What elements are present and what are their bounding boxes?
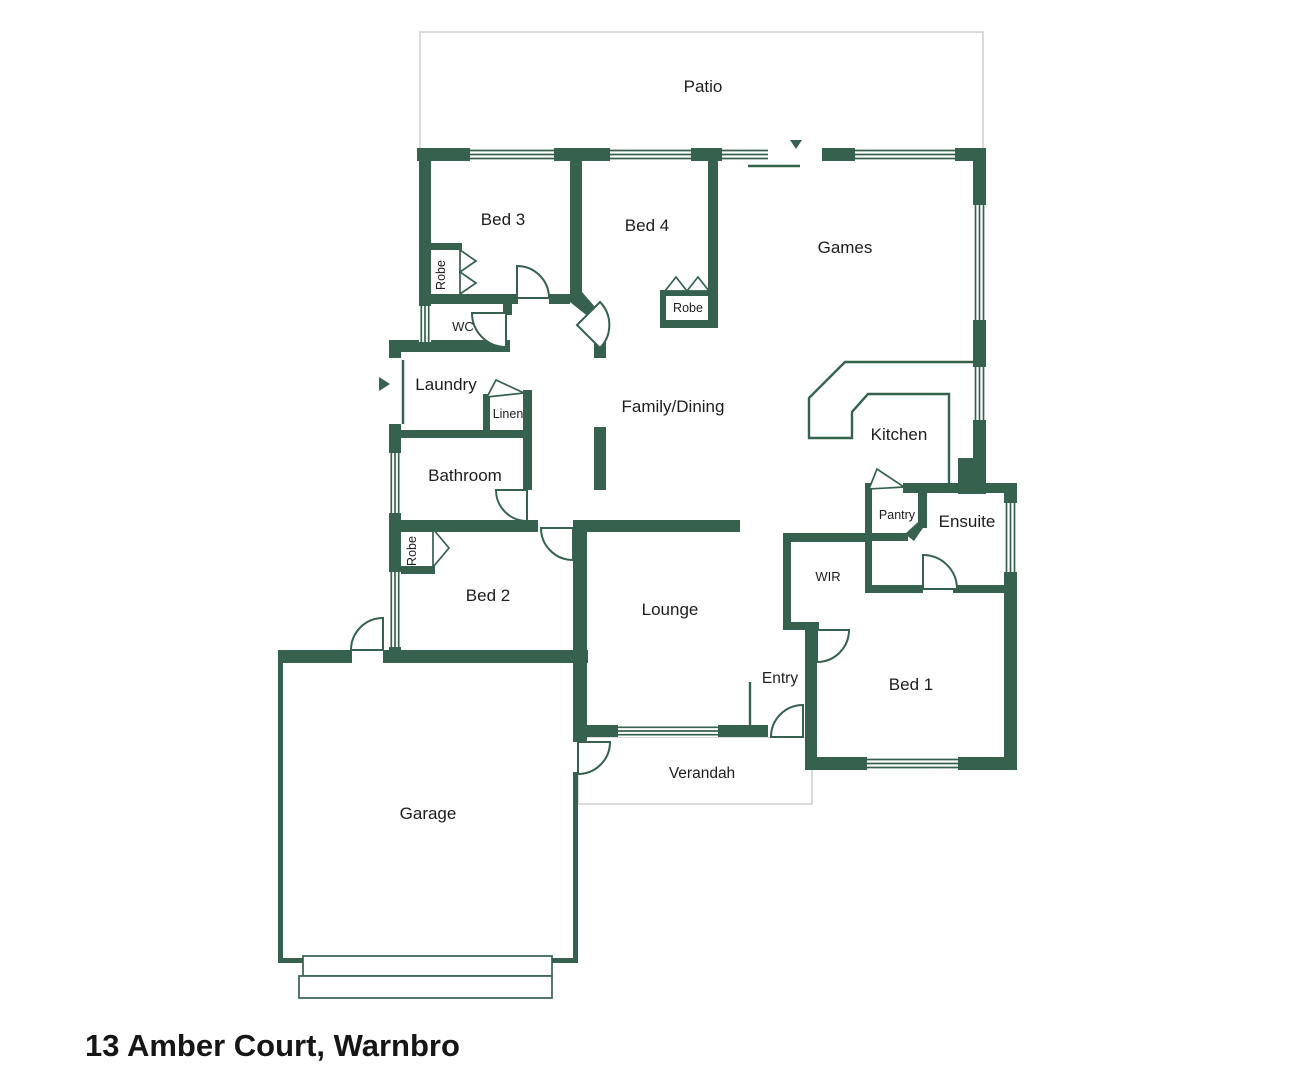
wall-segment — [868, 533, 908, 541]
window — [973, 205, 986, 320]
wall-segment — [865, 585, 923, 593]
floor-plan-drawing: Patio Bed 3 Bed 4 Games Robe WC Laundry … — [0, 0, 1299, 1080]
wall-segment — [398, 524, 435, 532]
room-label-linen: Linen — [493, 407, 524, 421]
room-label-family: Family/Dining — [622, 397, 725, 416]
page-title: 13 Amber Court, Warnbro — [85, 1028, 460, 1063]
wall-segment — [573, 520, 740, 532]
wall-segment — [958, 458, 986, 494]
room-label-laundry: Laundry — [415, 375, 477, 394]
window — [389, 453, 401, 513]
room-label-robe-bed3: Robe — [434, 260, 448, 290]
window — [389, 572, 401, 647]
side-entry-arrow-icon — [379, 377, 390, 391]
wall-segment — [570, 161, 582, 294]
robe-bed3-doors-icon — [460, 272, 476, 294]
linen-door-leaf — [487, 380, 524, 397]
room-label-bed2: Bed 2 — [466, 586, 510, 605]
room-labels: Patio Bed 3 Bed 4 Games Robe WC Laundry … — [400, 77, 996, 823]
room-label-kitchen: Kitchen — [871, 425, 928, 444]
room-label-bed3: Bed 3 — [481, 210, 525, 229]
window — [722, 148, 768, 161]
ensuite-door-arc — [923, 555, 957, 589]
room-label-patio: Patio — [684, 77, 723, 96]
robe-bed3-doors-icon — [460, 250, 476, 272]
garage-side-door-arc — [351, 618, 383, 650]
window — [973, 367, 986, 420]
wall-segment — [953, 585, 1008, 593]
bed2-door-arc — [541, 528, 573, 560]
room-label-robe-bed2: Robe — [405, 536, 419, 566]
room-label-wc: WC — [452, 319, 474, 334]
wall-segment — [805, 622, 817, 770]
wall-segment — [573, 772, 578, 963]
room-label-pantry: Pantry — [879, 508, 916, 522]
wall-segment — [594, 427, 606, 490]
wall-segment — [483, 430, 532, 438]
wall-segment — [783, 533, 791, 630]
bed3-door-arc — [517, 266, 549, 298]
room-label-bed1: Bed 1 — [889, 675, 933, 694]
wall-segment — [398, 430, 483, 438]
wall-segment — [549, 294, 570, 304]
wall-segment — [708, 148, 718, 328]
robe-bed4-doors-icon — [687, 277, 709, 291]
wall-segment — [783, 533, 865, 542]
window — [470, 148, 554, 161]
sliding-door-opening — [768, 148, 822, 161]
pantry-door-leaf — [869, 469, 904, 489]
wall-segment — [398, 566, 435, 574]
entry-door-arc — [771, 705, 803, 737]
room-label-bed4: Bed 4 — [625, 216, 669, 235]
room-label-games: Games — [818, 238, 873, 257]
wall-segment — [523, 438, 532, 490]
room-label-bathroom: Bathroom — [428, 466, 502, 485]
wall-segment — [905, 522, 927, 541]
wall-segment — [278, 652, 283, 963]
window — [1004, 503, 1017, 572]
garage-door — [299, 956, 552, 998]
wall-segment — [278, 650, 352, 663]
verandah-door-arc — [578, 742, 610, 774]
door-direction-marker-icon — [790, 140, 802, 149]
wall-segment — [573, 520, 587, 742]
bathroom-door-arc — [496, 490, 527, 521]
bed1-door-arc — [817, 630, 849, 662]
room-label-robe-bed4: Robe — [673, 301, 703, 315]
room-label-lounge: Lounge — [642, 600, 699, 619]
room-label-verandah: Verandah — [669, 765, 735, 782]
room-label-garage: Garage — [400, 804, 457, 823]
wall-segment — [383, 650, 588, 663]
window — [867, 757, 958, 770]
wall-segment — [660, 320, 718, 328]
kitchen-bench — [809, 362, 973, 483]
window — [618, 725, 718, 737]
laundry-door-opening — [389, 358, 401, 424]
wall-segment — [428, 243, 462, 250]
window — [419, 306, 431, 342]
floor-plan-page: Patio Bed 3 Bed 4 Games Robe WC Laundry … — [0, 0, 1299, 1080]
room-label-entry: Entry — [762, 670, 798, 687]
walls — [278, 148, 1017, 963]
window — [610, 148, 691, 161]
window — [855, 148, 955, 161]
robe-bed2-doors-icon — [433, 529, 449, 567]
wall-segment — [973, 148, 986, 493]
room-label-ensuite: Ensuite — [939, 512, 996, 531]
room-label-wir: WIR — [815, 569, 840, 584]
robe-bed4-doors-icon — [665, 277, 687, 291]
